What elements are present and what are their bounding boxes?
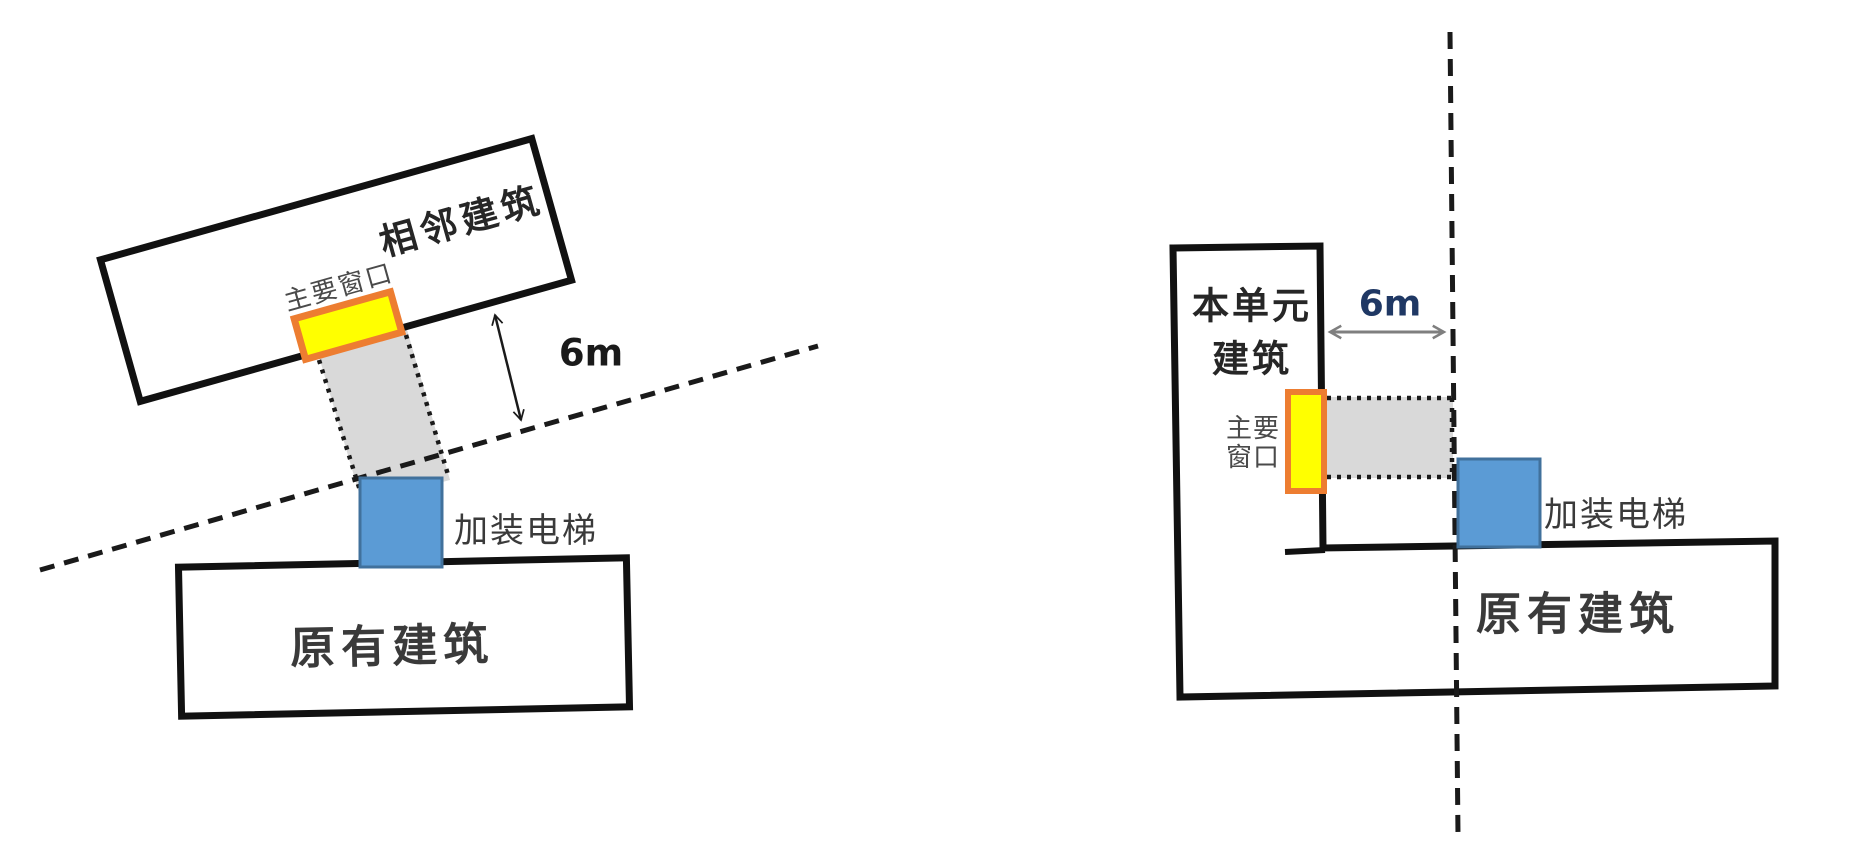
added-elevator-label-right: 加装电梯 [1544,495,1688,535]
unit-building-label-line1: 本单元 [1192,285,1312,328]
main-window-label-line2: 窗口 [1226,443,1280,473]
original-building-label-right: 原有建筑 [1476,588,1680,641]
diagram-canvas: 相邻建筑 主要窗口 原有建筑 加装电梯 6m 6m 本单元 建筑 主要 窗口 加… [0,0,1868,862]
background [0,0,1868,862]
original-building-label: 原有建筑 [290,618,495,675]
distance-label: 6m [559,332,623,375]
building-edge-overshoot [1285,550,1325,552]
original-building: 原有建筑 [178,558,629,716]
main-window-right [1288,392,1324,491]
added-elevator-right [1458,459,1540,547]
added-elevator-label: 加装电梯 [454,511,598,551]
main-window-label-line1: 主要 [1226,414,1280,444]
sight-corridor-right [1326,397,1453,478]
elevator-setback-diagram: 相邻建筑 主要窗口 原有建筑 加装电梯 6m 6m 本单元 建筑 主要 窗口 加… [0,0,1868,862]
added-elevator [360,478,442,567]
distance-label-right: 6m [1359,284,1422,325]
unit-building-label-line2: 建筑 [1212,338,1292,381]
